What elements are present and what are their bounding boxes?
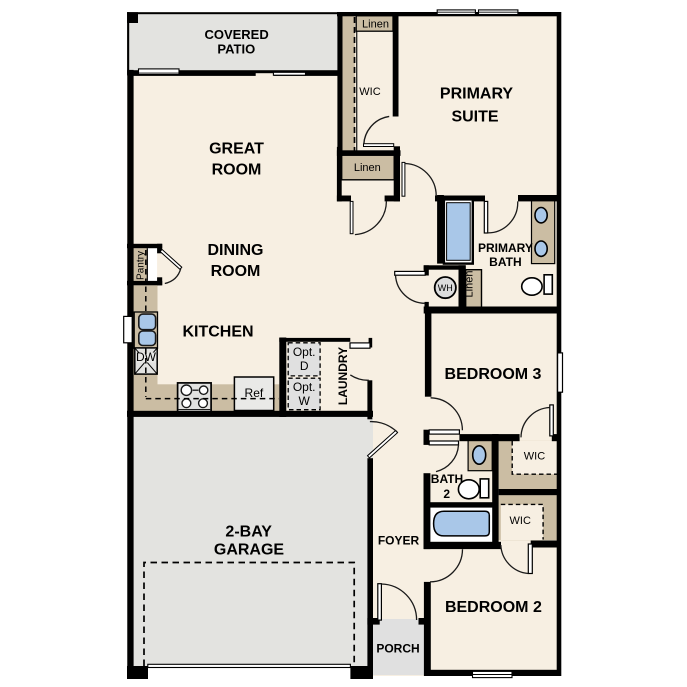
svg-text:KITCHEN: KITCHEN <box>182 323 253 340</box>
svg-text:BEDROOM 2: BEDROOM 2 <box>445 599 542 616</box>
svg-text:FOYER: FOYER <box>378 533 420 547</box>
svg-text:Linen: Linen <box>362 18 389 30</box>
svg-text:GARAGE: GARAGE <box>214 542 285 559</box>
svg-text:D: D <box>300 359 309 373</box>
svg-text:ROOM: ROOM <box>211 263 261 280</box>
svg-text:W: W <box>299 394 311 408</box>
svg-text:2: 2 <box>443 487 450 501</box>
svg-text:PATIO: PATIO <box>217 42 255 57</box>
svg-text:ROOM: ROOM <box>212 162 262 179</box>
svg-text:BATH: BATH <box>489 255 521 269</box>
svg-text:GREAT: GREAT <box>209 141 264 158</box>
svg-text:PORCH: PORCH <box>376 641 419 655</box>
svg-text:BATH: BATH <box>431 472 463 486</box>
svg-text:BEDROOM 3: BEDROOM 3 <box>445 366 542 383</box>
svg-text:COVERED: COVERED <box>204 27 268 42</box>
svg-text:Opt.: Opt. <box>293 345 316 359</box>
svg-text:Pantry: Pantry <box>136 251 147 280</box>
svg-text:WH: WH <box>438 283 453 293</box>
svg-text:WIC: WIC <box>524 450 545 462</box>
svg-text:Linen: Linen <box>464 271 476 298</box>
svg-text:WIC: WIC <box>510 515 531 527</box>
svg-text:DINING: DINING <box>208 242 264 259</box>
svg-text:SUITE: SUITE <box>451 108 498 125</box>
svg-text:LAUNDRY: LAUNDRY <box>336 347 350 405</box>
svg-text:Ref: Ref <box>245 386 264 400</box>
svg-text:PRIMARY: PRIMARY <box>478 241 533 255</box>
svg-text:PRIMARY: PRIMARY <box>440 86 514 103</box>
svg-text:Linen: Linen <box>354 162 381 174</box>
svg-text:2-BAY: 2-BAY <box>225 524 272 541</box>
svg-text:WIC: WIC <box>359 86 380 98</box>
svg-text:Opt.: Opt. <box>293 380 316 394</box>
